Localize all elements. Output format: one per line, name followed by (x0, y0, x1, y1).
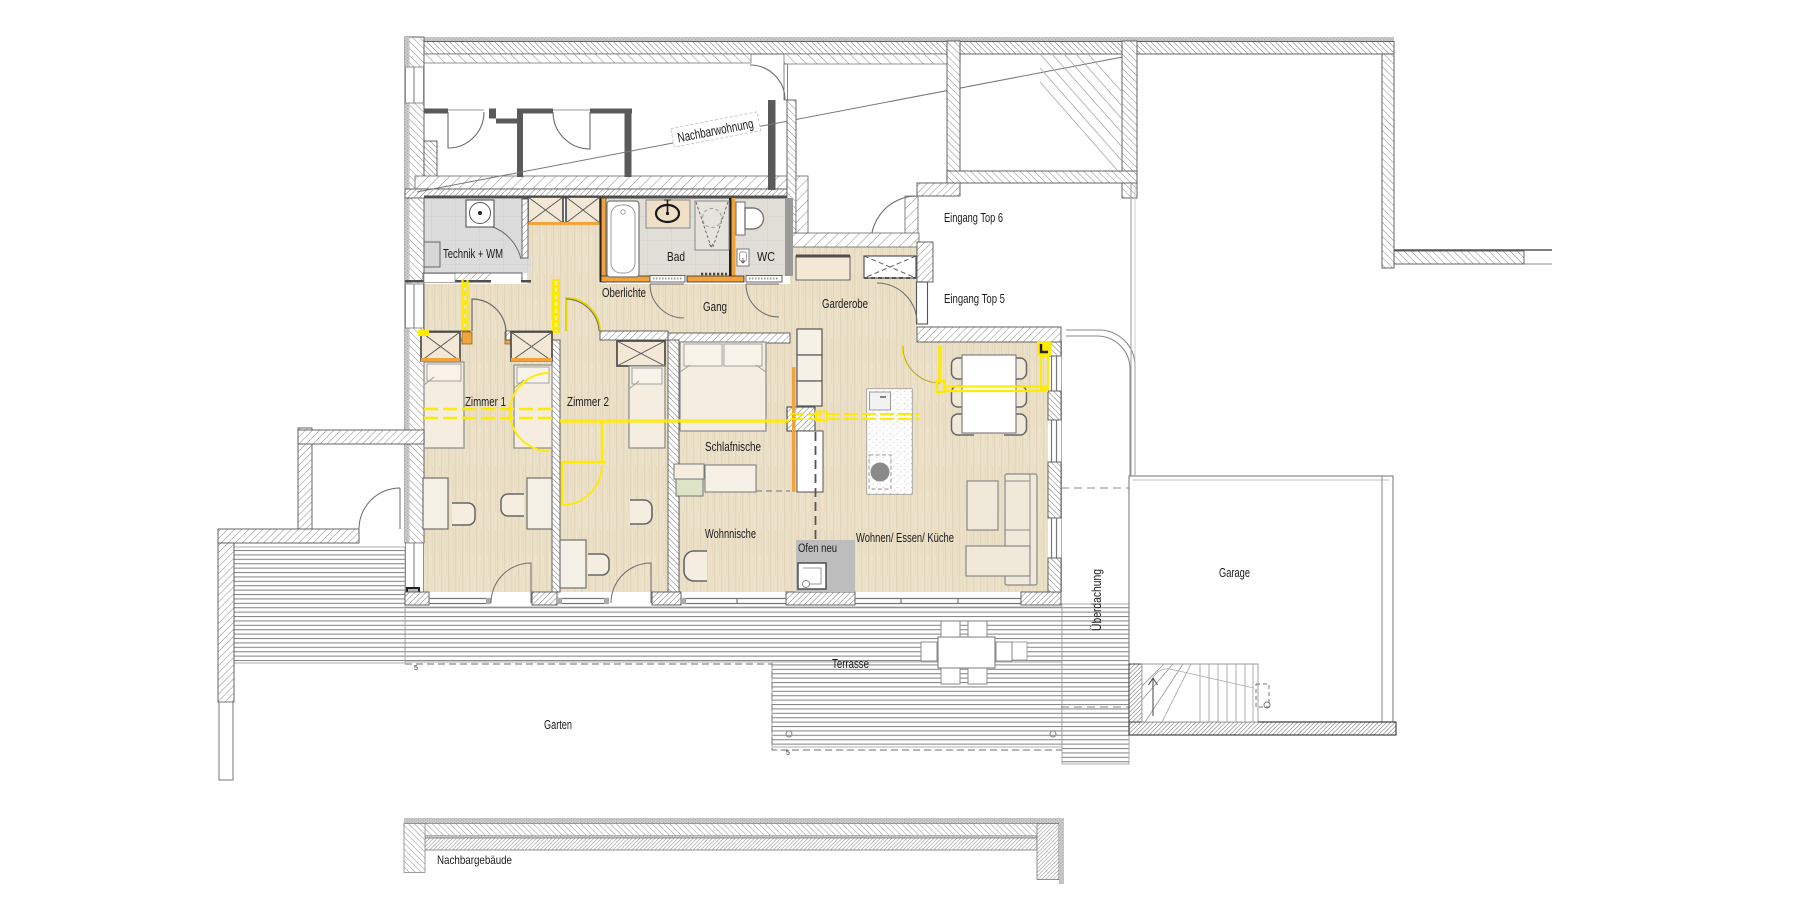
svg-text:Bad: Bad (667, 250, 685, 264)
svg-text:Oberlichte: Oberlichte (602, 286, 646, 300)
svg-text:Ofen neu: Ofen neu (798, 543, 837, 555)
svg-text:5: 5 (786, 750, 790, 757)
svg-text:Terrasse: Terrasse (832, 657, 869, 671)
svg-text:Garage: Garage (1219, 566, 1250, 580)
svg-text:Gang: Gang (703, 300, 727, 314)
svg-text:Garten: Garten (544, 718, 572, 732)
svg-text:Zimmer 2: Zimmer 2 (567, 395, 609, 409)
svg-text:5: 5 (414, 665, 418, 672)
svg-text:Nachbargebäude: Nachbargebäude (437, 853, 512, 867)
svg-text:Zimmer 1: Zimmer 1 (465, 395, 506, 409)
svg-text:Wohnen/ Essen/ Küche: Wohnen/ Essen/ Küche (856, 531, 954, 545)
svg-text:Garderobe: Garderobe (822, 297, 868, 311)
svg-text:Überdachung: Überdachung (1090, 569, 1104, 631)
svg-text:Wohnnische: Wohnnische (705, 527, 756, 541)
svg-text:Eingang Top 6: Eingang Top 6 (944, 211, 1003, 225)
svg-text:Schlafnische: Schlafnische (705, 440, 761, 454)
svg-text:WC: WC (757, 250, 775, 264)
svg-text:Eingang Top 5: Eingang Top 5 (944, 292, 1005, 306)
svg-text:Technik + WM: Technik + WM (443, 247, 503, 261)
